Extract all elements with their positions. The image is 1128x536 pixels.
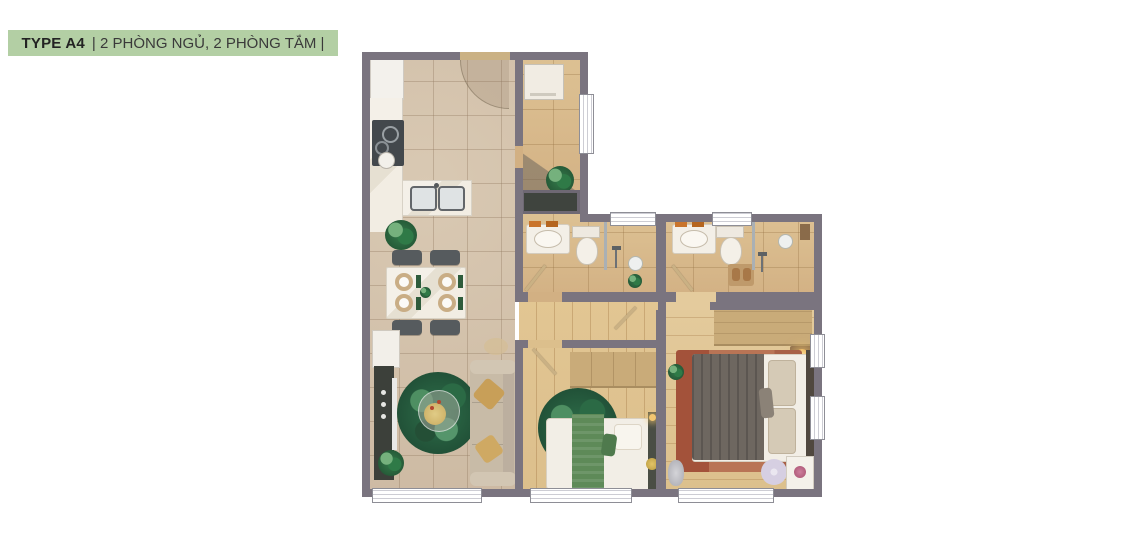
shower-bar [615,250,617,268]
plate [442,277,452,287]
potted-plant [668,364,684,380]
laundry-door-gap [515,146,523,168]
sink-basin [438,186,465,211]
bathroom2-door-gap [676,292,716,302]
wall-bath-divider [656,214,666,302]
table-plant [420,287,431,298]
faucet-icon [434,183,439,188]
plan-type-header: TYPE A4 | 2 PHÒNG NGỦ, 2 PHÒNG TẮM | [8,30,338,56]
plate [442,298,452,308]
window-bedroom2 [678,488,774,503]
decor-dot [381,414,386,419]
sink-basin [410,186,437,211]
dining-chair [430,250,460,265]
burner-icon [382,126,399,143]
entrance-door [460,52,510,60]
window-laundry [579,94,594,154]
wardrobe [714,310,812,346]
napkin [416,297,421,310]
dining-chair [392,250,422,265]
towel [546,221,558,227]
plan-subtitle: | 2 PHÒNG NGỦ, 2 PHÒNG TẮM | [92,35,325,52]
master-door-gap [666,302,710,310]
potted-plant [385,220,417,250]
window-master-right-2 [810,396,825,440]
service-shaft [521,190,580,214]
pot [378,152,395,169]
napkin [458,275,463,288]
washer-panel [530,93,556,96]
wall-bedroom1-left [515,340,523,497]
wardrobe [570,352,656,388]
pouf [761,459,787,485]
window-bathroom2 [712,212,752,226]
window-bedroom1 [530,488,632,503]
glass-divider [752,222,755,270]
floor-plan-canvas: TYPE A4 | 2 PHÒNG NGỦ, 2 PHÒNG TẮM | [0,0,1128,536]
toilet [720,237,742,265]
decor-dot [381,402,386,407]
plan-type-label: TYPE A4 [22,35,85,52]
slipper [732,268,740,281]
bedside-lamp [649,414,656,421]
wall-entry-laundry [515,52,523,146]
sculpture [668,460,684,486]
pillow [614,424,642,450]
plate [399,277,409,287]
towel [529,221,541,227]
bedroom1-door-gap [528,340,562,348]
wall-entry-laundry-2 [515,168,523,214]
decor-dot [430,406,434,410]
window-living [372,488,482,503]
napkin [416,275,421,288]
flower-vase [794,466,806,478]
potted-plant [378,450,404,476]
wall-left-outer [362,52,370,497]
dining-chair [430,320,460,335]
headboard-console [648,412,656,490]
shower-drain [778,234,793,249]
toilet [576,237,598,265]
decor-dot [381,390,386,395]
slipper [743,268,751,281]
window-bathroom1 [610,212,656,226]
napkin [458,297,463,310]
sofa-armrest [470,360,516,374]
bathroom1-door-gap [528,292,562,302]
duvet [692,354,764,460]
shower-bar [761,256,763,272]
sink-basin [680,230,708,248]
pampas-decor [484,338,508,355]
sofa-backrest [503,364,514,482]
glass-divider [604,222,607,270]
sink-basin [534,230,562,248]
dried-bouquet [424,403,446,425]
decor-dot [437,400,441,404]
fridge [370,58,404,100]
shower-shelf [800,224,810,240]
potted-plant [628,274,642,288]
wall-bath1-left [515,214,523,302]
sofa-armrest [470,472,516,486]
shower-drain [628,256,643,271]
wall-top-left [362,52,462,60]
plate [399,298,409,308]
wall-bedroom-divider [656,310,666,497]
sideboard [372,330,400,368]
window-master-right-1 [810,334,825,368]
bed-runner [572,414,604,490]
